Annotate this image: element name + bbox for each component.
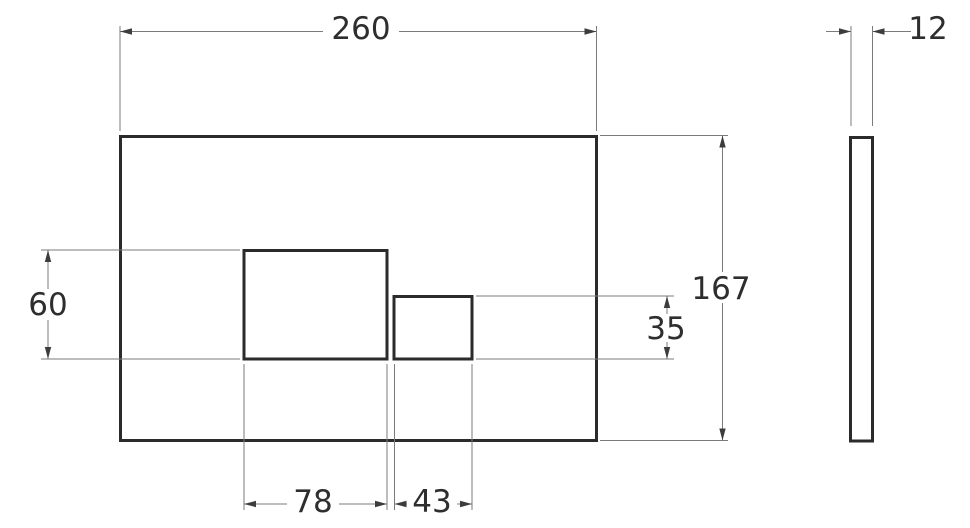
arrowhead-right (873, 28, 885, 34)
dimension-thickness: 12 (826, 11, 948, 126)
arrowhead-right (460, 501, 472, 507)
arrowhead-left (839, 28, 851, 34)
thickness-label: 12 (908, 11, 947, 47)
side-profile-outline (851, 138, 873, 442)
arrowhead-top (664, 296, 670, 308)
dimension-overall-height: 167 (600, 136, 760, 441)
front-view (121, 137, 597, 441)
arrowhead-left (395, 501, 407, 507)
arrowhead-right (585, 28, 597, 34)
arrowhead-bottom (664, 347, 670, 359)
large-button-outline (244, 251, 387, 360)
small-button-height-label: 35 (646, 311, 685, 347)
arrowhead-top (45, 250, 51, 262)
large-button-width-label: 78 (293, 484, 332, 520)
arrowhead-bottom (719, 429, 725, 441)
overall-width-label: 260 (331, 11, 390, 47)
arrowhead-left (120, 28, 132, 34)
arrowhead-left (244, 501, 256, 507)
flush-plate-dimension-drawing: 260 12 167 (0, 0, 970, 528)
side-view (851, 138, 873, 442)
technical-drawing-canvas: 260 12 167 (0, 0, 970, 528)
arrowhead-bottom (45, 347, 51, 359)
dimension-overall-width: 260 (120, 11, 597, 131)
small-button-outline (394, 297, 472, 360)
arrowhead-top (719, 136, 725, 148)
large-button-height-label: 60 (28, 287, 67, 323)
arrowhead-right (375, 501, 387, 507)
small-button-width-label: 43 (412, 484, 451, 520)
overall-height-label: 167 (691, 271, 750, 307)
